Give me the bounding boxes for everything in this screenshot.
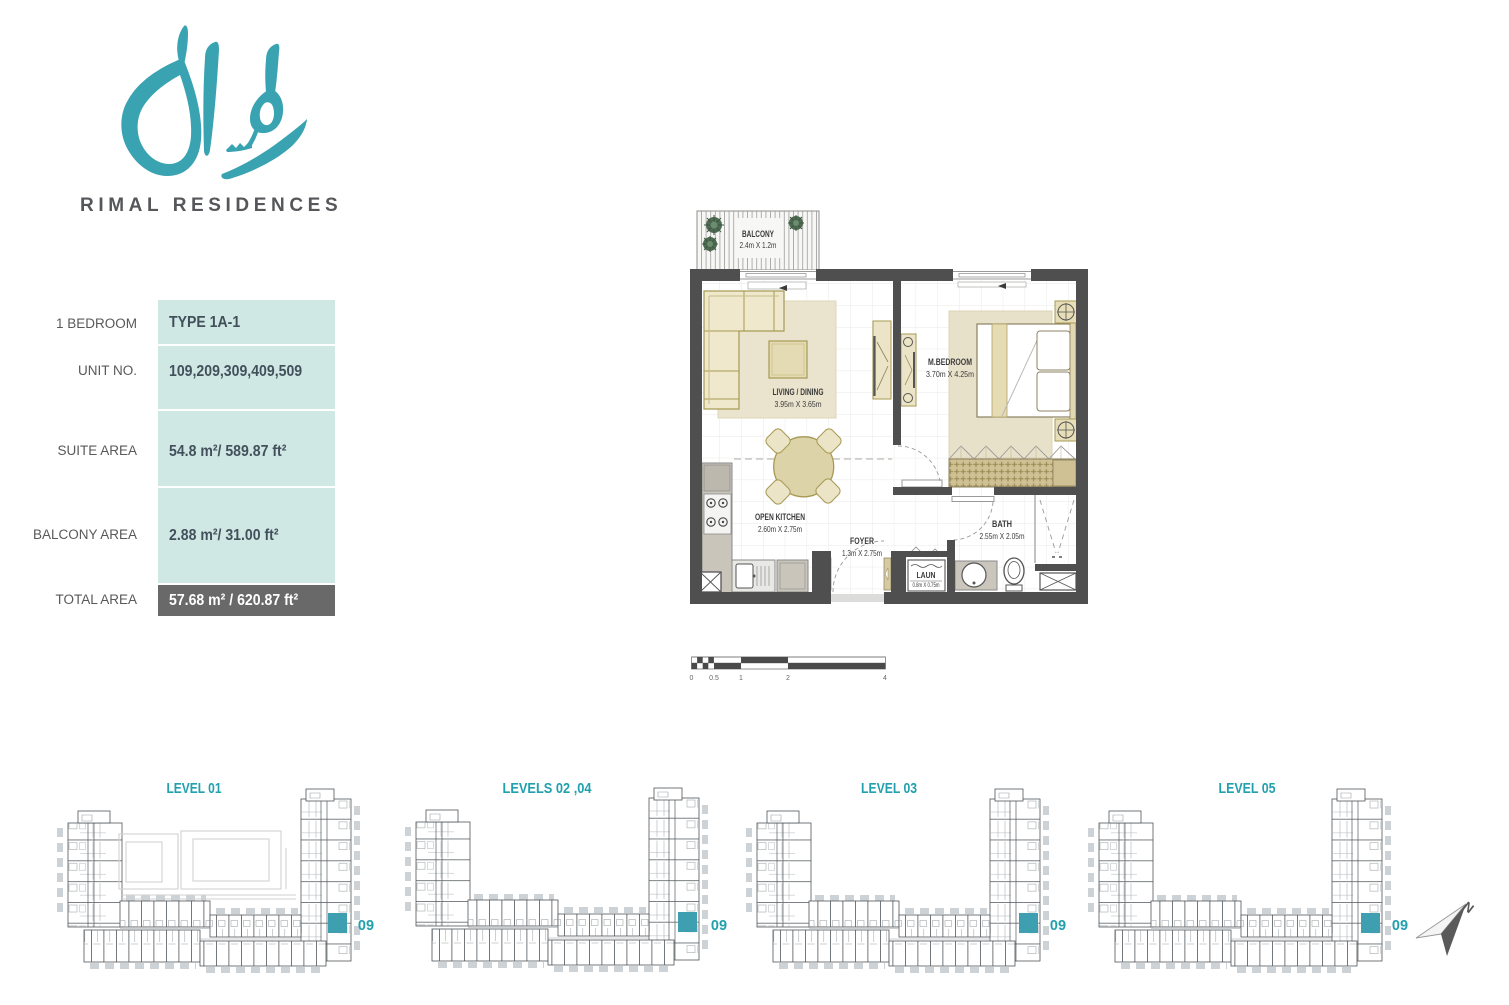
svg-text:2.4m X 1.2m: 2.4m X 1.2m xyxy=(740,240,777,250)
svg-text:LAUN: LAUN xyxy=(917,571,936,580)
svg-text:0.5: 0.5 xyxy=(709,675,719,682)
svg-text:LIVING / DINING: LIVING / DINING xyxy=(773,387,824,397)
svg-text:2.60m X 2.75m: 2.60m X 2.75m xyxy=(758,524,802,534)
svg-text:3.70m X 4.25m: 3.70m X 4.25m xyxy=(926,369,974,379)
svg-text:OPEN KITCHEN: OPEN KITCHEN xyxy=(755,512,805,522)
svg-text:LEVEL 01: LEVEL 01 xyxy=(167,780,222,797)
svg-text:LEVELS 02 ,04: LEVELS 02 ,04 xyxy=(503,780,593,797)
svg-text:09: 09 xyxy=(1050,918,1066,934)
svg-text:09: 09 xyxy=(1392,918,1408,934)
svg-text:2: 2 xyxy=(786,675,790,682)
svg-text:FOYER: FOYER xyxy=(850,536,874,546)
svg-text:BALCONY: BALCONY xyxy=(742,229,774,239)
svg-text:0.8m X 0.75m: 0.8m X 0.75m xyxy=(913,583,940,589)
svg-text:1.3m X 2.75m: 1.3m X 2.75m xyxy=(842,548,882,558)
svg-text:09: 09 xyxy=(711,918,727,934)
svg-text:LEVEL 05: LEVEL 05 xyxy=(1219,780,1276,797)
svg-text:N: N xyxy=(1460,899,1477,917)
svg-text:09: 09 xyxy=(358,918,374,934)
svg-text:4: 4 xyxy=(883,675,887,682)
svg-text:BATH: BATH xyxy=(992,519,1012,529)
svg-text:M.BEDROOM: M.BEDROOM xyxy=(928,357,972,367)
svg-text:0: 0 xyxy=(690,675,694,682)
svg-text:LEVEL 03: LEVEL 03 xyxy=(861,780,917,797)
svg-text:3.95m X 3.65m: 3.95m X 3.65m xyxy=(775,399,822,409)
svg-text:2.55m X 2.05m: 2.55m X 2.05m xyxy=(980,531,1025,541)
svg-text:1: 1 xyxy=(739,675,743,682)
